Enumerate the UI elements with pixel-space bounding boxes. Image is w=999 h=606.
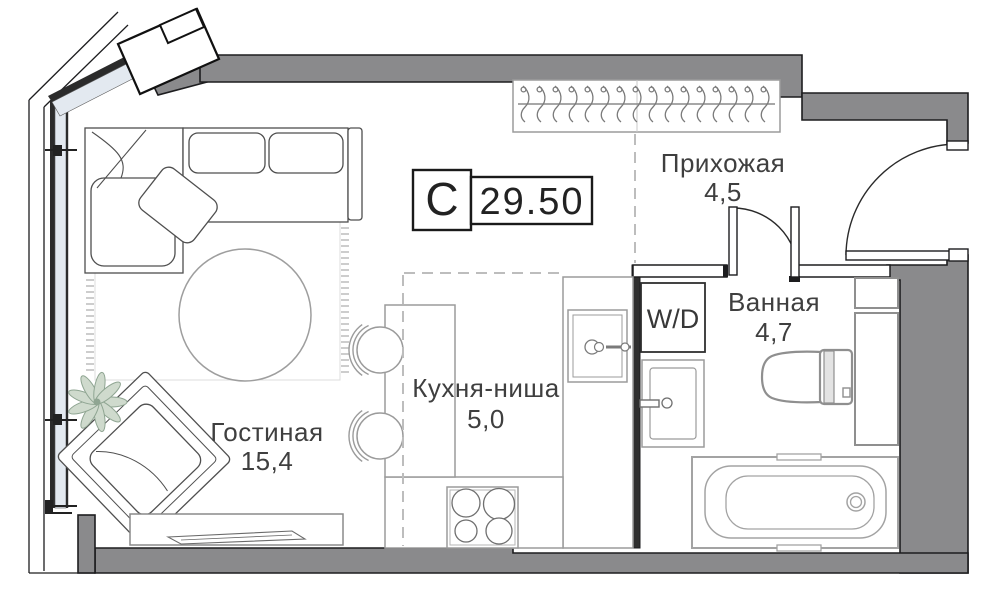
chair xyxy=(349,411,403,462)
bathtub-grip xyxy=(777,545,821,551)
bathtub xyxy=(692,454,898,551)
badge-type-letter: С xyxy=(425,173,458,225)
door-jamb-mark-left xyxy=(723,265,728,277)
burner-icon xyxy=(452,489,480,517)
entrance-door xyxy=(846,141,968,261)
bathroom-sink xyxy=(640,360,704,447)
bathroom-top-wall-right xyxy=(798,265,890,277)
mullion-block-mid xyxy=(53,414,62,425)
door-leaf xyxy=(846,251,963,260)
mullion-block-top xyxy=(53,145,62,156)
bath-shelf-small xyxy=(855,278,898,308)
bathroom-label: Ванная xyxy=(728,287,820,317)
bathroom-door xyxy=(729,207,799,277)
rug-fringe-right xyxy=(341,228,349,372)
hall-closet xyxy=(513,80,780,132)
right-wall xyxy=(887,255,968,573)
kitchen-sink xyxy=(568,310,631,382)
badge-area-value: 29.50 xyxy=(479,181,584,223)
flush-button xyxy=(843,388,850,397)
bathroom-area: 4,7 xyxy=(755,317,793,347)
round-rug xyxy=(179,249,311,381)
bottom-wall xyxy=(95,548,968,573)
living-room-area: 15,4 xyxy=(241,446,294,476)
bottom-left-pier xyxy=(78,515,95,573)
door-jamb xyxy=(947,141,968,150)
living-room-label: Гостиная xyxy=(210,417,323,447)
kitchen-label: Кухня-ниша xyxy=(412,373,559,403)
hallway-area: 4,5 xyxy=(704,177,742,207)
burner-icon xyxy=(486,518,512,544)
sofa-back-cushion xyxy=(269,133,343,173)
window-glazing xyxy=(55,100,66,508)
door-jamb xyxy=(791,207,799,277)
area-badge: С 29.50 xyxy=(413,170,592,230)
bathtub-grip xyxy=(777,454,821,460)
window-frame-outer xyxy=(50,100,55,508)
door-leaf xyxy=(729,207,737,275)
top-right-wall xyxy=(802,93,968,143)
door-jamb xyxy=(949,249,968,261)
door-swing-arc xyxy=(846,144,958,255)
faucet-icon xyxy=(640,400,659,407)
floor-plan: W/D xyxy=(0,0,999,606)
hallway-label: Прихожая xyxy=(661,148,785,178)
kitchen-area: 5,0 xyxy=(467,404,505,434)
toilet xyxy=(762,350,852,404)
chair xyxy=(349,325,403,376)
door-swing-arc xyxy=(733,208,798,273)
washer-dryer-label: W/D xyxy=(647,304,699,334)
sofa xyxy=(85,128,362,273)
sofa-back-cushion xyxy=(189,133,265,173)
tv-stand xyxy=(130,514,343,545)
bath-cabinet-tall xyxy=(855,313,898,445)
burner-icon xyxy=(484,489,515,520)
burner-icon xyxy=(455,520,477,542)
bathroom-top-wall-left xyxy=(633,265,727,277)
stove xyxy=(447,487,518,548)
rug-fringe-left xyxy=(86,280,94,370)
sill-block xyxy=(45,500,53,513)
